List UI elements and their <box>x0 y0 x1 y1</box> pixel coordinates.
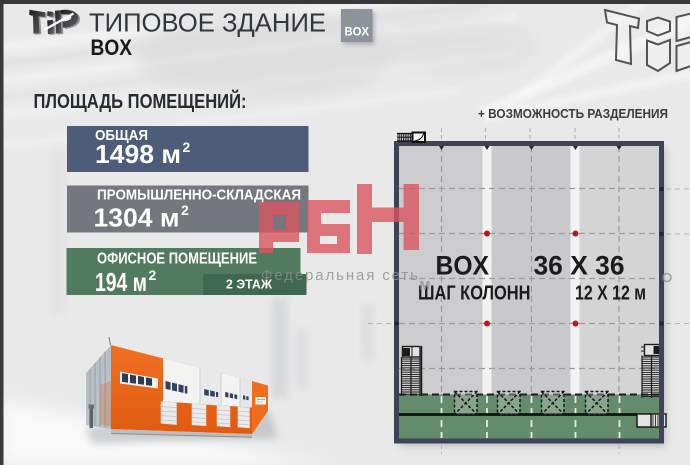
svg-text:1498 м: 1498 м <box>95 139 181 169</box>
svg-text:36 X 36: 36 X 36 <box>534 251 625 281</box>
svg-text:М: М <box>420 278 431 293</box>
svg-text:ОФИСНОЕ ПОМЕЩЕНИЕ: ОФИСНОЕ ПОМЕЩЕНИЕ <box>97 251 257 268</box>
svg-text:+ ВОЗМОЖНОСТЬ РАЗДЕЛЕНИЯ: + ВОЗМОЖНОСТЬ РАЗДЕЛЕНИЯ <box>478 106 668 121</box>
svg-text:Федеральная сеть: Федеральная сеть <box>261 267 418 284</box>
svg-text:ПРОМЫШЛЕННО-СКЛАДСКАЯ: ПРОМЫШЛЕННО-СКЛАДСКАЯ <box>97 187 301 204</box>
svg-text:1304 м: 1304 м <box>94 203 180 233</box>
svg-text:BOX: BOX <box>436 251 490 281</box>
svg-text:2: 2 <box>149 267 157 283</box>
svg-text:194 м: 194 м <box>95 267 147 297</box>
svg-text:ШАГ КОЛОНН: ШАГ КОЛОНН <box>418 283 531 305</box>
svg-text:2: 2 <box>181 202 189 218</box>
svg-text:BOX: BOX <box>91 35 133 60</box>
svg-text:ТИПОВОЕ ЗДАНИЕ: ТИПОВОЕ ЗДАНИЕ <box>89 8 326 38</box>
svg-text:2: 2 <box>183 139 191 155</box>
svg-text:12 X 12 м: 12 X 12 м <box>575 283 646 305</box>
svg-text:BOX: BOX <box>345 27 370 39</box>
svg-text:ПЛОЩАДЬ ПОМЕЩЕНИЙ:: ПЛОЩАДЬ ПОМЕЩЕНИЙ: <box>34 89 247 113</box>
